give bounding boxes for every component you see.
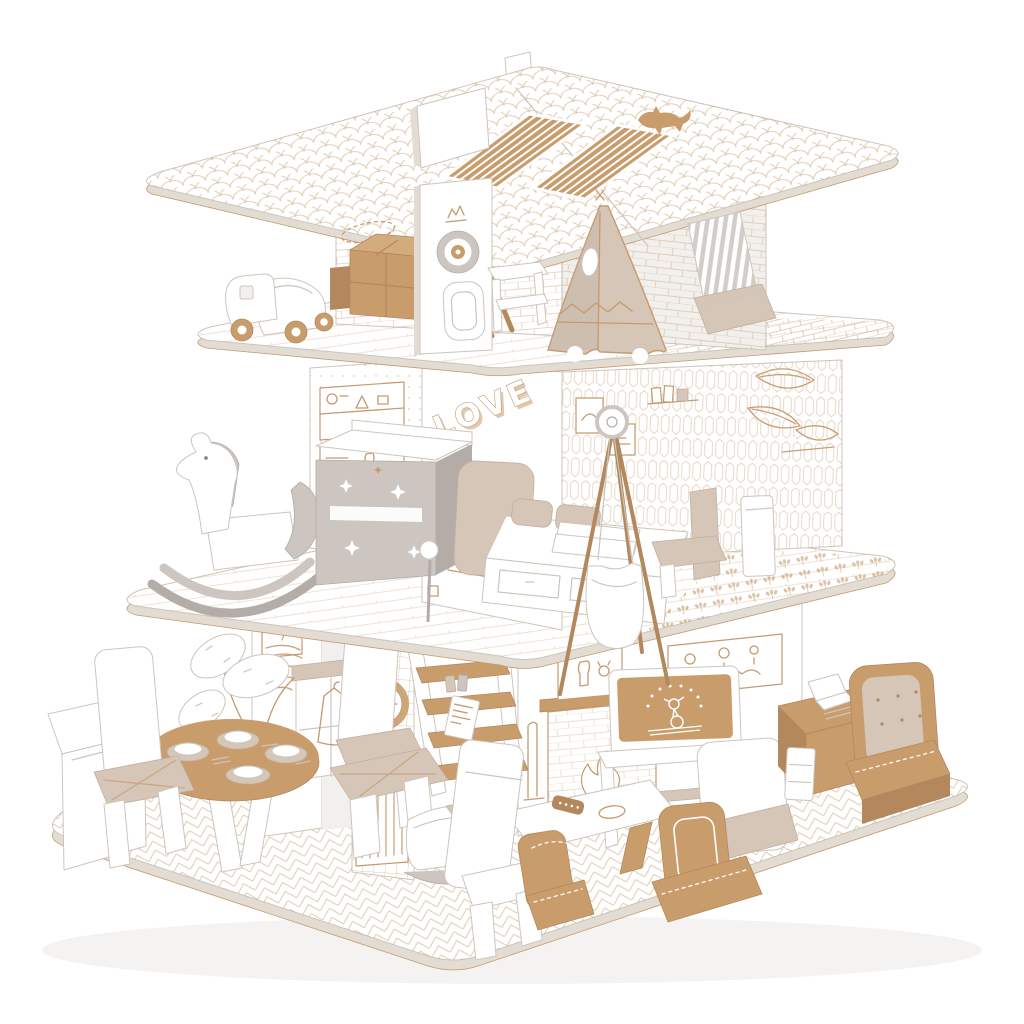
truck-cab [226, 274, 277, 326]
shelf-book [445, 676, 456, 693]
dresser-shelf [330, 506, 422, 522]
star-dresser [316, 420, 472, 585]
tv-screen [617, 674, 733, 742]
desk-drawers [785, 747, 816, 800]
dollhouse-illustration: LOVE LOVE [0, 0, 1024, 1024]
attic-chair [443, 281, 486, 341]
shelf-book [457, 675, 467, 692]
product-photo: LOVE LOVE [0, 0, 1024, 1024]
tufted-chair [846, 661, 950, 824]
pillow [511, 498, 553, 528]
roof-assembly [147, 67, 899, 276]
cradle-ring [597, 407, 627, 437]
balcony-planter [741, 495, 776, 576]
cradle-seat [586, 563, 644, 649]
